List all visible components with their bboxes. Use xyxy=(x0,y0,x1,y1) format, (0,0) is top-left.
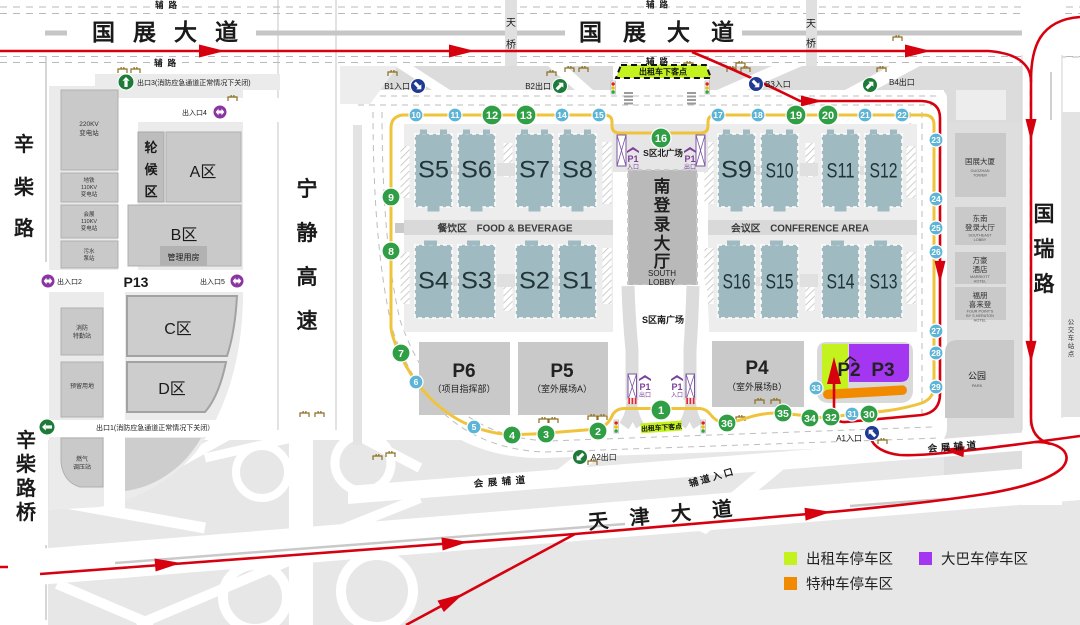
svg-text:GUOZHAN: GUOZHAN xyxy=(971,169,990,173)
svg-text:1: 1 xyxy=(658,405,664,417)
svg-text:31: 31 xyxy=(847,409,857,419)
svg-text:S12: S12 xyxy=(870,160,898,183)
svg-text:福朋: 福朋 xyxy=(973,291,988,300)
svg-text:13: 13 xyxy=(520,110,532,122)
svg-text:35: 35 xyxy=(777,408,789,420)
svg-text:交: 交 xyxy=(1068,325,1075,334)
svg-text:天: 天 xyxy=(806,19,816,30)
svg-text:会展: 会展 xyxy=(83,210,95,218)
svg-text:B区: B区 xyxy=(171,227,198,244)
svg-text:B3入口: B3入口 xyxy=(765,80,791,89)
svg-text:110KV: 110KV xyxy=(81,219,97,225)
svg-text:P1: P1 xyxy=(684,154,695,164)
svg-text:区: 区 xyxy=(144,184,157,199)
svg-text:瑞: 瑞 xyxy=(1034,238,1055,261)
svg-text:调压站: 调压站 xyxy=(73,463,91,471)
svg-text:S3: S3 xyxy=(461,268,492,295)
svg-text:S5: S5 xyxy=(418,157,449,184)
svg-text:14: 14 xyxy=(557,110,567,120)
svg-text:S14: S14 xyxy=(827,271,855,294)
svg-text:21: 21 xyxy=(860,110,870,120)
svg-text:管理用房: 管理用房 xyxy=(168,252,200,262)
svg-text:路: 路 xyxy=(1034,272,1056,296)
svg-text:A1入口: A1入口 xyxy=(836,434,862,443)
svg-text:出入口5: 出入口5 xyxy=(200,277,225,286)
svg-text:30: 30 xyxy=(863,409,875,421)
svg-text:辅路: 辅路 xyxy=(155,0,182,10)
svg-text:P4: P4 xyxy=(745,358,769,379)
svg-text:S10: S10 xyxy=(766,160,794,183)
svg-text:28: 28 xyxy=(931,348,941,358)
svg-text:S2: S2 xyxy=(519,268,550,295)
svg-text:S8: S8 xyxy=(562,157,593,184)
svg-text:A2出口: A2出口 xyxy=(591,452,617,462)
svg-text:110KV: 110KV xyxy=(81,185,97,191)
svg-text:燃气: 燃气 xyxy=(76,455,88,463)
svg-text:34: 34 xyxy=(804,413,816,425)
svg-text:S11: S11 xyxy=(827,160,855,183)
svg-text:220KV: 220KV xyxy=(79,121,99,128)
svg-text:喜来登: 喜来登 xyxy=(969,299,992,309)
svg-text:宁: 宁 xyxy=(297,177,318,201)
svg-text:D区: D区 xyxy=(158,381,186,398)
svg-text:SOUTHEAST: SOUTHEAST xyxy=(968,234,992,238)
svg-text:公: 公 xyxy=(1068,319,1075,326)
svg-text:静: 静 xyxy=(297,221,318,245)
svg-text:（项目指挥部）: （项目指挥部） xyxy=(432,383,495,394)
svg-text:辅路: 辅路 xyxy=(646,0,673,10)
svg-text:出口: 出口 xyxy=(639,391,651,399)
svg-text:高: 高 xyxy=(297,265,318,289)
svg-text:路: 路 xyxy=(16,476,37,500)
svg-text:泵站: 泵站 xyxy=(83,254,95,262)
svg-text:桥: 桥 xyxy=(806,38,816,50)
svg-text:变电站: 变电站 xyxy=(79,128,99,137)
svg-text:16: 16 xyxy=(655,133,667,145)
svg-text:20: 20 xyxy=(822,110,834,122)
svg-text:轮: 轮 xyxy=(144,140,157,155)
svg-text:万豪: 万豪 xyxy=(973,255,988,265)
svg-text:3: 3 xyxy=(543,429,549,441)
svg-text:S13: S13 xyxy=(870,271,898,294)
svg-text:11: 11 xyxy=(451,110,460,120)
svg-text:酒店: 酒店 xyxy=(973,264,988,274)
svg-text:S15: S15 xyxy=(766,271,794,294)
svg-text:LOBBY: LOBBY xyxy=(974,238,987,242)
svg-text:5: 5 xyxy=(472,422,477,432)
svg-text:24: 24 xyxy=(931,194,941,204)
svg-text:S1: S1 xyxy=(562,268,593,295)
svg-text:国展大道: 国展大道 xyxy=(92,19,256,45)
svg-text:南: 南 xyxy=(654,176,671,196)
svg-text:8: 8 xyxy=(388,246,394,258)
svg-text:P3: P3 xyxy=(871,360,894,381)
svg-text:S7: S7 xyxy=(519,157,550,184)
svg-text:辅路: 辅路 xyxy=(154,58,181,68)
svg-text:出口1(消防应急通道正常情况下关闭）: 出口1(消防应急通道正常情况下关闭） xyxy=(96,423,214,432)
svg-text:9: 9 xyxy=(388,192,394,204)
svg-text:PARK: PARK xyxy=(972,383,983,388)
svg-text:东南: 东南 xyxy=(973,213,988,223)
svg-text:22: 22 xyxy=(897,110,907,120)
svg-text:入口: 入口 xyxy=(671,392,683,399)
svg-text:车: 车 xyxy=(1068,333,1075,342)
svg-text:特勤站: 特勤站 xyxy=(73,332,91,340)
svg-text:地铁: 地铁 xyxy=(83,176,95,184)
svg-text:大巴车停车区: 大巴车停车区 xyxy=(941,551,1028,568)
svg-text:辛: 辛 xyxy=(14,132,34,156)
svg-text:登: 登 xyxy=(653,195,671,215)
svg-text:SOUTH: SOUTH xyxy=(648,269,676,278)
svg-text:C区: C区 xyxy=(164,321,192,338)
svg-text:出租车停车区: 出租车停车区 xyxy=(806,551,893,568)
svg-text:A区: A区 xyxy=(190,164,217,181)
svg-text:P1: P1 xyxy=(639,382,650,392)
svg-text:7: 7 xyxy=(398,348,404,360)
svg-text:S6: S6 xyxy=(461,157,492,184)
svg-text:HOTEL: HOTEL xyxy=(974,280,987,284)
svg-text:15: 15 xyxy=(594,110,604,120)
svg-text:P1: P1 xyxy=(671,382,682,392)
svg-text:（室外展场B）: （室外展场B） xyxy=(727,381,787,392)
svg-text:天: 天 xyxy=(506,18,516,29)
svg-text:变电站: 变电站 xyxy=(81,224,98,232)
svg-text:TOWER: TOWER xyxy=(973,174,987,178)
svg-text:36: 36 xyxy=(721,418,733,430)
svg-text:23: 23 xyxy=(931,135,941,145)
svg-text:10: 10 xyxy=(411,110,421,120)
svg-text:P2: P2 xyxy=(837,360,860,381)
svg-text:S区北广场: S区北广场 xyxy=(643,148,683,158)
svg-text:BY S.HERATON: BY S.HERATON xyxy=(966,314,994,318)
svg-text:国展大道: 国展大道 xyxy=(579,19,755,45)
svg-text:12: 12 xyxy=(486,110,498,122)
svg-text:桥: 桥 xyxy=(506,39,516,51)
svg-text:路: 路 xyxy=(14,216,35,240)
svg-text:P5: P5 xyxy=(550,361,574,382)
svg-text:消防: 消防 xyxy=(76,324,88,332)
svg-text:柴: 柴 xyxy=(15,452,37,476)
svg-text:32: 32 xyxy=(825,412,837,424)
svg-text:HOTEL: HOTEL xyxy=(974,319,987,323)
svg-text:公园: 公园 xyxy=(968,371,986,381)
svg-text:P1: P1 xyxy=(627,154,638,164)
svg-text:B1入口: B1入口 xyxy=(384,82,410,91)
svg-text:污水: 污水 xyxy=(83,247,95,255)
svg-text:出租车下客点: 出租车下客点 xyxy=(639,67,687,77)
svg-text:B4出口: B4出口 xyxy=(889,77,915,87)
svg-text:国: 国 xyxy=(1034,203,1055,226)
svg-text:预留用地: 预留用地 xyxy=(70,382,94,390)
svg-text:大: 大 xyxy=(654,233,671,253)
svg-text:19: 19 xyxy=(790,110,802,122)
svg-text:国展大厦: 国展大厦 xyxy=(965,156,995,166)
svg-text:出入口2: 出入口2 xyxy=(57,277,82,286)
svg-text:录: 录 xyxy=(654,215,671,234)
svg-text:18: 18 xyxy=(753,110,763,120)
svg-text:（室外展场A）: （室外展场A） xyxy=(532,383,592,394)
svg-text:会议区 CONFERENCE AREA: 会议区 CONFERENCE AREA xyxy=(731,222,869,235)
svg-text:2: 2 xyxy=(595,426,601,438)
svg-text:出入口4: 出入口4 xyxy=(182,108,207,117)
svg-text:P6: P6 xyxy=(452,361,475,382)
svg-text:柴: 柴 xyxy=(13,175,35,199)
svg-text:桥: 桥 xyxy=(16,501,37,524)
svg-text:FOUR POINT'S: FOUR POINT'S xyxy=(967,310,994,314)
svg-text:辛: 辛 xyxy=(16,428,36,452)
svg-text:出口3(消防应急通道正常情况下关闭): 出口3(消防应急通道正常情况下关闭) xyxy=(137,78,251,87)
svg-text:站: 站 xyxy=(1068,341,1075,350)
svg-text:17: 17 xyxy=(713,110,723,120)
svg-text:餐饮区 FOOD & BEVERAGE: 餐饮区 FOOD & BEVERAGE xyxy=(437,222,573,235)
svg-text:S16: S16 xyxy=(723,271,751,294)
svg-text:点: 点 xyxy=(1068,350,1075,358)
svg-text:6: 6 xyxy=(414,377,419,387)
svg-text:4: 4 xyxy=(509,430,515,442)
svg-text:P13: P13 xyxy=(124,274,149,290)
svg-text:登录大厅: 登录大厅 xyxy=(965,222,995,232)
svg-text:B2出口: B2出口 xyxy=(525,81,551,91)
svg-text:速: 速 xyxy=(297,310,318,333)
svg-text:S4: S4 xyxy=(418,268,449,295)
svg-text:特种车停车区: 特种车停车区 xyxy=(806,576,893,593)
svg-text:候: 候 xyxy=(144,162,158,177)
svg-text:S9: S9 xyxy=(721,157,752,184)
svg-text:25: 25 xyxy=(931,223,941,233)
svg-text:27: 27 xyxy=(931,326,941,336)
svg-text:变电站: 变电站 xyxy=(81,190,98,198)
svg-text:MARRIOTT: MARRIOTT xyxy=(970,275,991,279)
svg-text:33: 33 xyxy=(811,383,821,393)
svg-text:S区南广场: S区南广场 xyxy=(642,314,684,325)
svg-text:26: 26 xyxy=(931,247,941,257)
svg-text:29: 29 xyxy=(931,382,941,392)
